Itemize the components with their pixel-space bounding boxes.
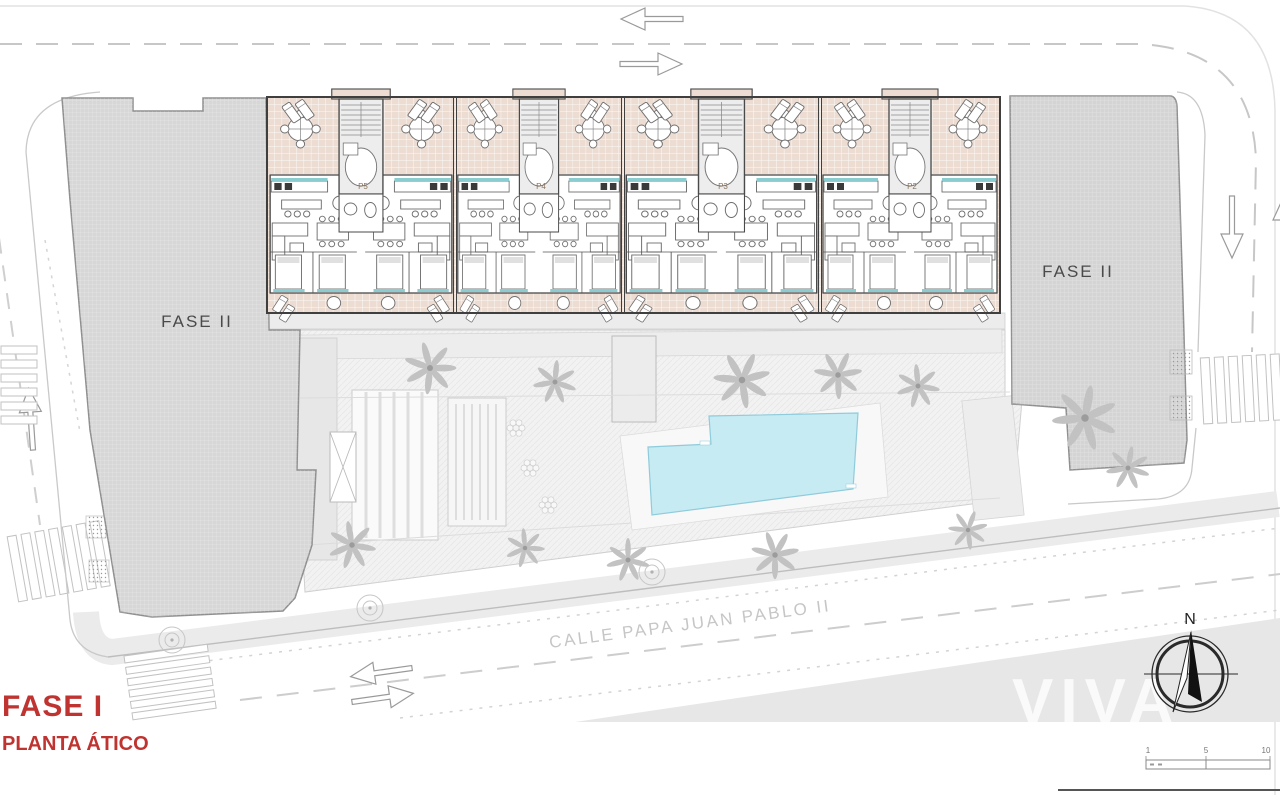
traffic-arrow-right-icon <box>620 53 682 75</box>
scale-tick-10: 10 <box>1262 746 1271 755</box>
tactile-paving-left-1 <box>86 516 106 538</box>
street-arrow-left-icon <box>349 657 413 687</box>
tactile-paving-right-1 <box>1170 350 1192 374</box>
scale-bar: 1 5 10 <box>1146 746 1271 769</box>
module-1 <box>267 89 455 322</box>
street-name-label: CALLE PAPA JUAN PABLO II <box>548 596 832 652</box>
crosswalk-bottom-street <box>124 644 216 720</box>
phase-title: FASE I <box>2 690 103 723</box>
pool-house <box>612 336 656 422</box>
core-label-p3: P3 <box>718 182 728 191</box>
floor-subtitle: PLANTA ÁTICO <box>2 732 149 755</box>
module-3 <box>623 89 820 322</box>
street-arrow-right-icon <box>350 682 414 712</box>
tactile-paving-right-2 <box>1170 396 1192 420</box>
plan-svg: VIVA <box>0 0 1280 800</box>
tactile-paving-left-2 <box>89 560 109 582</box>
traffic-arrow-left-icon <box>621 8 683 30</box>
watermark: VIVA <box>1012 667 1180 736</box>
site-plan-drawing: VIVA <box>0 0 1280 800</box>
traffic-arrow-up-partial-icon <box>1273 196 1280 258</box>
core-label-p4: P4 <box>536 182 546 191</box>
apartment-strip: P5 P4 P3 P2 <box>267 89 1000 322</box>
module-2 <box>455 89 623 322</box>
planter-flower-2 <box>521 460 539 476</box>
planter-flower-3 <box>539 497 557 513</box>
pool-ladder-1 <box>700 441 710 445</box>
building-left-label: FASE II <box>161 312 233 331</box>
pool-ladder-2 <box>846 484 856 488</box>
core-label-p5: P5 <box>358 182 368 191</box>
building-right-label: FASE II <box>1042 262 1114 281</box>
planter-flower-1 <box>507 420 525 436</box>
north-label: N <box>1184 611 1196 628</box>
scale-tick-5: 5 <box>1204 746 1209 755</box>
scale-tick-1: 1 <box>1146 746 1151 755</box>
crosswalk-right-street <box>1200 354 1280 424</box>
walkway-band <box>267 313 1005 329</box>
traffic-arrow-down-icon <box>1221 196 1243 258</box>
right-road <box>1200 196 1280 424</box>
core-label-p2: P2 <box>907 182 917 191</box>
module-4 <box>820 89 1000 322</box>
